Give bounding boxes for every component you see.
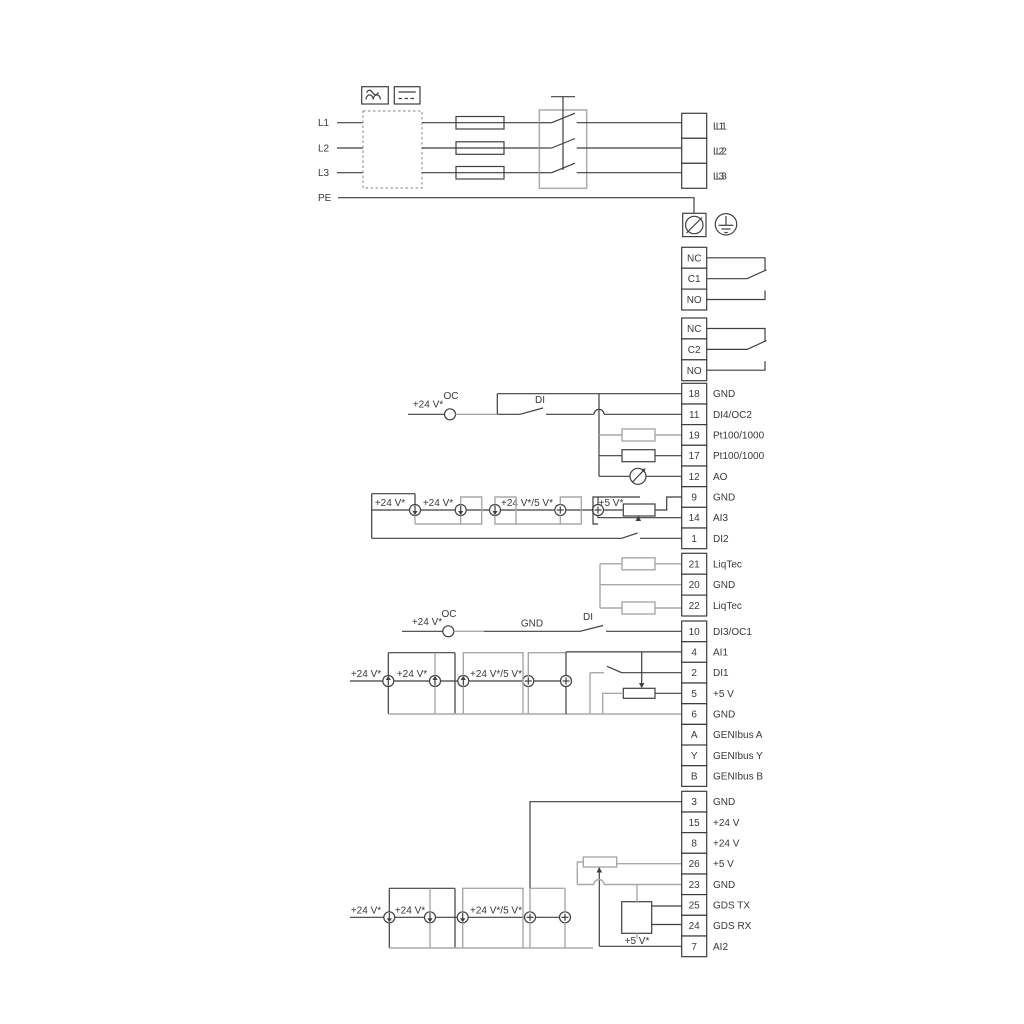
io-terminal-label: LiqTec (713, 601, 742, 612)
filter-box (363, 111, 422, 188)
io-terminal-number: 5 (691, 689, 697, 700)
v24-label: +24 V* (412, 617, 442, 628)
shape (394, 87, 420, 104)
wire (463, 888, 523, 948)
label: +24 V* (397, 669, 427, 680)
input-label-l1: L1 (318, 118, 330, 129)
io-terminal-number: 14 (689, 513, 701, 524)
current-source-symbol (458, 676, 469, 687)
voltage-source-symbol (561, 676, 572, 687)
relay2-terminal-number: NC (687, 324, 701, 335)
io-terminal-number: 8 (691, 839, 697, 850)
shape (622, 450, 655, 462)
schematic-svg: L1 L2 L3 PE (0, 0, 1024, 1024)
gds-sensor-box: +5 V* (622, 885, 682, 948)
input-label-l3: L3 (318, 168, 330, 179)
relay2-contact (707, 329, 767, 371)
io-terminal-label: GND (713, 880, 735, 891)
relay2-terminal-number: C2 (688, 345, 701, 356)
io-terminal-label: LiqTec (713, 559, 742, 570)
voltage-source-symbol (593, 505, 604, 516)
power-out-terminal-label: L2 (713, 146, 725, 157)
shape (622, 429, 655, 441)
io-terminal-number: 6 (691, 710, 697, 721)
io-terminal-number: 25 (689, 901, 701, 912)
gnd-label: GND (521, 619, 543, 630)
label: +24 V* (395, 905, 425, 916)
shape (623, 688, 655, 698)
label: +24 V*/5 V* (501, 498, 553, 509)
io-terminal-label: DI3/OC1 (713, 627, 752, 638)
pt100-sensor-1 (599, 429, 682, 441)
wire (577, 862, 583, 885)
io-terminal-number: 23 (689, 880, 701, 891)
io-terminal-number: 18 (689, 389, 701, 400)
shape (622, 902, 652, 934)
io-terminal-number: 21 (689, 559, 701, 570)
io-terminal-label: +5 V (713, 689, 734, 700)
oc-label: OC (444, 391, 459, 402)
io-terminal-number: 15 (689, 818, 701, 829)
main-switch (539, 97, 681, 189)
wire (463, 653, 523, 714)
current-source-symbol (410, 505, 421, 516)
io-terminal-label: AI2 (713, 942, 728, 953)
wire (747, 270, 767, 279)
current-source-symbol (383, 676, 394, 687)
io-terminal-label: +24 V (713, 839, 740, 850)
wire (603, 693, 624, 714)
label: +24 V* (351, 669, 381, 680)
io-terminal-label: Pt100/1000 (713, 431, 765, 442)
open-collector-symbol (445, 409, 456, 420)
shape (583, 857, 616, 867)
io3-wiring: +24 V* +24 V* +24 V*/5 V* (350, 802, 682, 948)
io-terminal-number: 9 (691, 493, 697, 504)
label: +24 V* (375, 498, 405, 509)
ai3-options: +24 V* +24 V* +24 V*/5 V* +5 V* (372, 494, 682, 539)
current-source-symbol (430, 676, 441, 687)
io-terminal-number: 2 (691, 668, 697, 679)
wiring-diagram: L1 L2 L3 PE (0, 0, 1024, 1024)
dc-symbol (394, 87, 420, 104)
io-terminal-number: 3 (691, 797, 697, 808)
power-out-terminal-cell (682, 138, 707, 163)
wire (707, 329, 765, 342)
io-terminal-number: Y (691, 751, 698, 762)
io-terminal-label: AO (713, 472, 728, 483)
power-out-terminal-cell (682, 163, 707, 188)
io-terminal-label: GND (713, 710, 735, 721)
io-terminal-label: DI2 (713, 534, 729, 545)
pt100-sensor-2 (599, 450, 682, 462)
current-source-symbol (457, 912, 468, 923)
wire (707, 361, 765, 370)
io-terminal-label: AI1 (713, 648, 728, 659)
wire (747, 341, 767, 350)
io-terminal-number: 11 (689, 410, 700, 421)
input-label-pe: PE (318, 193, 332, 204)
io-terminal-label: DI1 (713, 668, 729, 679)
io-terminal-label: GENIbus A (713, 730, 763, 741)
current-source-symbol (490, 505, 501, 516)
io-terminal-number: 20 (689, 580, 701, 591)
io-terminal-number: 10 (689, 627, 701, 638)
io-terminal-label: DI4/OC2 (713, 410, 752, 421)
liqtec-wiring (600, 558, 682, 614)
io1-wiring: +24 V* OC DI (372, 391, 682, 538)
io-terminal-number: 7 (691, 942, 697, 953)
wire (528, 653, 566, 678)
io-terminal-label: GND (713, 493, 735, 504)
shape (623, 504, 655, 516)
liqtec-sensor-1 (622, 558, 655, 570)
io-terminal-label: GND (713, 797, 735, 808)
power-out-terminal-cell (682, 113, 707, 138)
io-terminal-number: 17 (689, 451, 701, 462)
shape (597, 867, 603, 873)
io-terminal-number: 26 (689, 859, 701, 870)
wire (580, 626, 603, 632)
io-terminal-label: GDS RX (713, 921, 752, 932)
ac-symbol (362, 87, 389, 104)
label: +24 V* (351, 905, 381, 916)
current-source-symbol (425, 912, 436, 923)
pe-wire (338, 198, 694, 214)
relay1-terminal-number: C1 (688, 274, 701, 285)
io-terminal-number: B (691, 772, 698, 783)
open-collector-symbol (443, 626, 454, 637)
io-terminal-number: 22 (689, 601, 701, 612)
wire (622, 533, 638, 538)
wire (707, 258, 765, 271)
di-label: DI (583, 612, 593, 623)
wire (655, 497, 682, 510)
io-terminal-number: 12 (689, 472, 701, 483)
power-out-terminal-label: L3 (713, 171, 725, 182)
io-terminal-label: +5 V (713, 859, 734, 870)
io-terminal-label: GENIbus Y (713, 751, 763, 762)
io2-wiring: +24 V* OC GND DI +24 V* +24 V* +24 V*/5 … (350, 609, 682, 714)
power-out-terminal-label: L1 (713, 121, 725, 132)
io-terminal-number: 1 (691, 534, 697, 545)
io-terminal-label: AI3 (713, 513, 728, 524)
relay2-terminal-number: NO (687, 366, 702, 377)
liqtec-sensor-2 (622, 602, 655, 614)
relay1-terminal-number: NC (687, 253, 701, 264)
potentiometer (603, 688, 682, 714)
io-terminal-number: 19 (689, 431, 701, 442)
gds-5v-label: +5 V* (625, 936, 650, 947)
di-label: DI (535, 395, 545, 406)
wire (707, 291, 765, 300)
voltage-source-symbol (525, 912, 536, 923)
io-terminal-label: GENIbus B (713, 772, 763, 783)
shape (639, 683, 644, 688)
pe-screw-terminal (683, 213, 706, 236)
relay1-terminal-number: NO (687, 295, 702, 306)
wire (607, 666, 622, 672)
terminal-strips: L1L2L3NCC1NONCC2NO18GND11DI4/OC219Pt100/… (682, 113, 765, 956)
earth-symbol (715, 214, 736, 235)
current-source-symbol (384, 912, 395, 923)
io-terminal-label: GDS TX (713, 901, 750, 912)
io-terminal-number: 4 (691, 648, 697, 659)
input-label-l2: L2 (318, 144, 330, 155)
voltage-source-symbol (555, 505, 566, 516)
relay1-contact (707, 258, 767, 300)
analog-output-meter (599, 468, 682, 484)
current-source-symbol (455, 505, 466, 516)
power-section: L1 L2 L3 PE (318, 87, 737, 237)
voltage-source-symbol (560, 912, 571, 923)
io-terminal-label: Pt100/1000 (713, 451, 765, 462)
io-terminal-number: A (691, 730, 698, 741)
ai1-options: +24 V* +24 V* +24 V*/5 V* (350, 652, 682, 714)
oc-label: OC (442, 609, 457, 620)
label: +24 V*/5 V* (470, 669, 522, 680)
label: +24 V* (423, 498, 453, 509)
io-terminal-label: GND (713, 389, 735, 400)
ai2-options: +24 V* +24 V* +24 V*/5 V* (350, 888, 593, 948)
io-terminal-label: +24 V (713, 818, 740, 829)
wire (520, 408, 543, 414)
wire (530, 802, 682, 889)
io-terminal-number: 24 (689, 921, 701, 932)
v24-label: +24 V* (413, 400, 443, 411)
io-terminal-label: GND (713, 580, 735, 591)
label: +24 V*/5 V* (470, 905, 522, 916)
